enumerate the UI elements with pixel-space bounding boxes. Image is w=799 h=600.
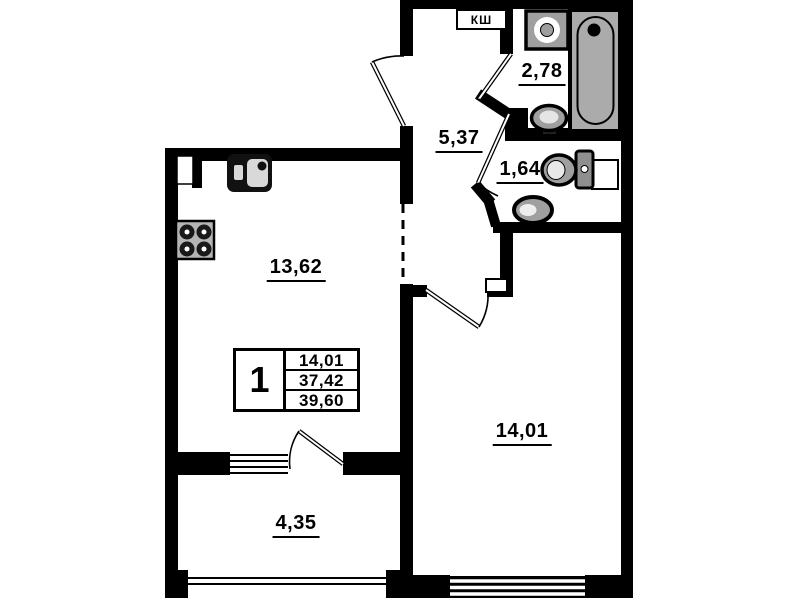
room-label-balcony: 4,35 <box>273 512 320 538</box>
balcony-area: 4,35 <box>273 512 320 538</box>
room-label-living-room: 14,01 <box>493 420 552 446</box>
room-label-kitchen: 13,62 <box>267 256 326 282</box>
room-label-wc: 1,64 <box>497 158 544 184</box>
bathtub-icon <box>570 10 620 131</box>
bathroom-area: 2,78 <box>519 60 566 86</box>
floor-plan: 13,62 5,37 2,78 1,64 14,01 4,35 КШ 1 14,… <box>0 0 799 600</box>
area-row: 14,01 <box>286 351 357 371</box>
window <box>188 578 388 584</box>
shaft-label: КШ <box>471 13 492 27</box>
room-label-hallway: 5,37 <box>436 127 483 153</box>
shaft-label-box: КШ <box>456 9 507 30</box>
toilet-icon <box>542 151 593 188</box>
stove-icon <box>176 221 214 259</box>
corner-sink-icon <box>514 197 552 223</box>
hallway-area: 5,37 <box>436 127 483 153</box>
area-row: 39,60 <box>286 391 357 409</box>
washing-machine-icon <box>526 11 568 49</box>
area-row: 37,42 <box>286 371 357 391</box>
window <box>230 455 288 473</box>
unit-number: 1 <box>236 351 286 409</box>
kitchen-sink-icon <box>227 154 272 192</box>
area-summary-table: 1 14,01 37,42 39,60 <box>233 348 360 412</box>
living-room-area: 14,01 <box>493 420 552 446</box>
room-label-bathroom: 2,78 <box>519 60 566 86</box>
area-rows: 14,01 37,42 39,60 <box>286 351 357 409</box>
wc-area: 1,64 <box>497 158 544 184</box>
entrance-door <box>372 56 404 126</box>
kitchen-area: 13,62 <box>267 256 326 282</box>
living-room-door <box>426 290 488 327</box>
washbasin-icon <box>532 106 567 135</box>
plan-linework <box>0 0 799 600</box>
balcony-door <box>290 431 343 469</box>
window <box>450 576 585 598</box>
wall <box>488 199 496 226</box>
